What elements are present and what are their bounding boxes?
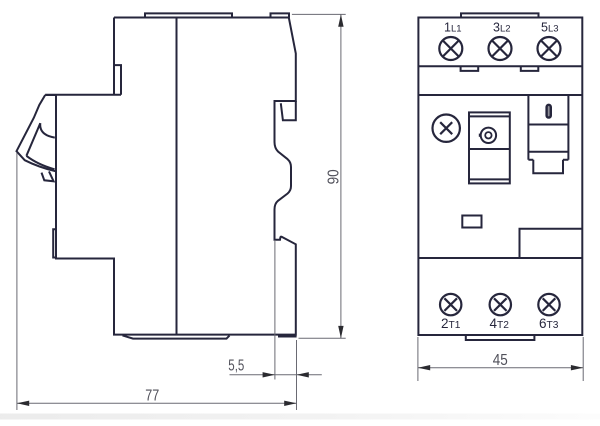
svg-text:2T1: 2T1 [441,316,461,331]
svg-text:5,5: 5,5 [228,357,244,374]
svg-text:4T2: 4T2 [490,316,510,331]
svg-text:77: 77 [145,388,159,405]
svg-text:1L1: 1L1 [444,20,462,34]
svg-text:6T3: 6T3 [539,316,559,331]
svg-text:3L2: 3L2 [493,20,511,34]
svg-text:5L3: 5L3 [541,20,559,34]
svg-text:45: 45 [493,352,508,369]
svg-text:90: 90 [325,169,342,184]
